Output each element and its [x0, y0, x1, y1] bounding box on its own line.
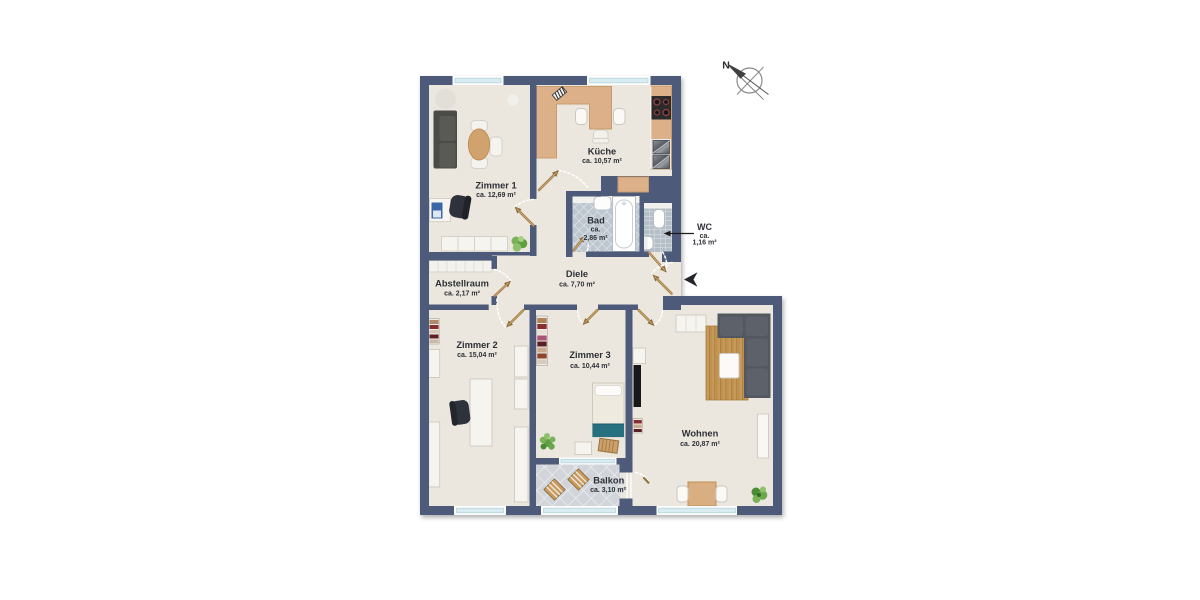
svg-text:1,16 m²: 1,16 m² — [692, 240, 717, 247]
svg-text:Zimmer 3: Zimmer 3 — [569, 350, 610, 360]
svg-text:Küche: Küche — [588, 146, 616, 156]
svg-text:Diele: Diele — [566, 269, 588, 279]
svg-text:ca. 7,70 m²: ca. 7,70 m² — [559, 281, 595, 288]
svg-text:Wohnen: Wohnen — [682, 428, 719, 438]
svg-text:ca. 15,04 m²: ca. 15,04 m² — [457, 352, 497, 359]
svg-text:ca. 20,87 m²: ca. 20,87 m² — [680, 441, 720, 448]
svg-text:Zimmer 2: Zimmer 2 — [456, 340, 497, 350]
svg-text:Zimmer 1: Zimmer 1 — [475, 181, 516, 191]
svg-text:Abstellraum: Abstellraum — [435, 279, 489, 289]
svg-text:Balkon: Balkon — [593, 476, 624, 486]
svg-text:Bad: Bad — [587, 216, 605, 226]
svg-text:WC: WC — [697, 222, 712, 232]
svg-text:ca.: ca. — [591, 227, 601, 234]
svg-text:ca. 12,69 m²: ca. 12,69 m² — [476, 192, 516, 199]
svg-text:ca. 2,17 m²: ca. 2,17 m² — [444, 291, 480, 298]
svg-text:ca. 10,57 m²: ca. 10,57 m² — [582, 158, 622, 165]
svg-text:ca. 10,44 m²: ca. 10,44 m² — [570, 363, 610, 370]
svg-text:ca. 3,10 m²: ca. 3,10 m² — [590, 487, 626, 494]
svg-text:2,86 m²: 2,86 m² — [583, 235, 608, 242]
svg-text:N: N — [722, 60, 730, 72]
